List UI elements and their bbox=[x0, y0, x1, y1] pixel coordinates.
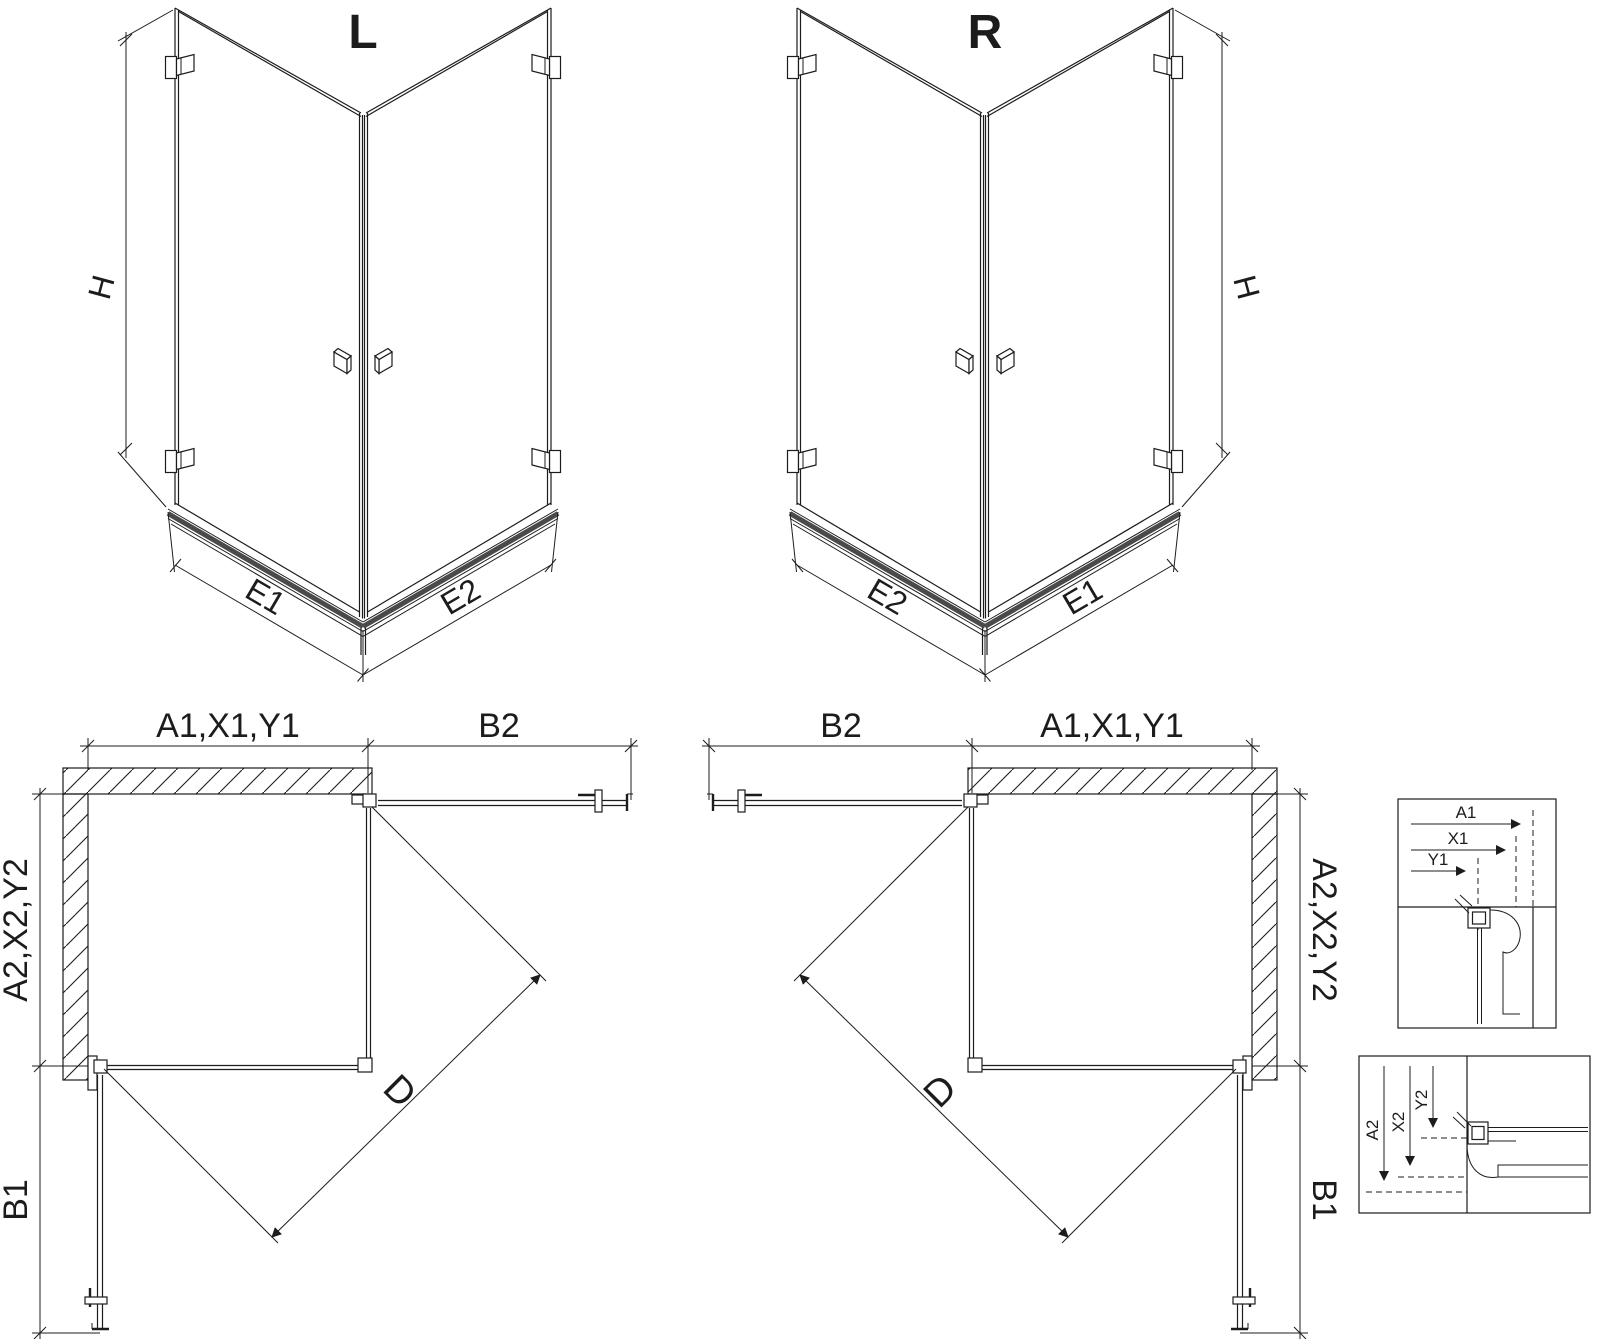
plan-right-top-wall bbox=[968, 768, 1277, 794]
drawing-canvas: L H E1 E2 R H E2 E1 A1,X1,Y1 B2 A2,X2,Y2… bbox=[0, 0, 1600, 1339]
plan-left-side-wall bbox=[63, 794, 88, 1080]
detail-upper-label-a1: A1 bbox=[1456, 803, 1477, 822]
iso-left-title: L bbox=[348, 6, 377, 59]
detail-section-lower: A2 X2 Y2 bbox=[1359, 1056, 1590, 1213]
detail-lower-label-a2: A2 bbox=[1363, 1120, 1382, 1141]
detail-section-upper: A1 X1 Y1 bbox=[1398, 799, 1556, 1028]
plan-left-dim-d: D bbox=[375, 1067, 424, 1116]
plan-left-dim-a2: A2,X2,Y2 bbox=[0, 858, 35, 1002]
plan-right-dim-a1: A1,X1,Y1 bbox=[1040, 707, 1184, 745]
iso-view-right: R H E2 E1 bbox=[788, 6, 1268, 682]
technical-drawing-sheet: L H E1 E2 R H E2 E1 A1,X1,Y1 B2 A2,X2,Y2… bbox=[0, 0, 1600, 1339]
plan-view-right: B2 A1,X1,Y1 A2,X2,Y2 B1 D bbox=[702, 707, 1343, 1339]
plan-left-dim-a1: A1,X1,Y1 bbox=[156, 707, 300, 745]
iso-left-dim-height: H bbox=[81, 271, 122, 303]
plan-view-left: A1,X1,Y1 B2 A2,X2,Y2 B1 D bbox=[0, 707, 638, 1339]
iso-right-dim-height: H bbox=[1226, 271, 1267, 303]
detail-lower-label-y2: Y2 bbox=[1412, 1090, 1431, 1111]
plan-right-dim-b1: B1 bbox=[1305, 1179, 1343, 1221]
plan-right-side-wall bbox=[1252, 794, 1277, 1080]
iso-right-title: R bbox=[968, 6, 1003, 59]
plan-right-dim-d: D bbox=[916, 1067, 965, 1116]
detail-upper-label-y1: Y1 bbox=[1428, 850, 1449, 869]
plan-left-dim-b2: B2 bbox=[478, 707, 520, 745]
detail-upper-label-x1: X1 bbox=[1448, 829, 1469, 848]
plan-left-top-wall bbox=[63, 768, 372, 794]
plan-right-dim-b2: B2 bbox=[820, 707, 862, 745]
iso-view-left: L H E1 E2 bbox=[81, 6, 561, 682]
plan-right-dim-a2: A2,X2,Y2 bbox=[1305, 858, 1343, 1002]
plan-left-dim-b1: B1 bbox=[0, 1179, 35, 1221]
detail-lower-label-x2: X2 bbox=[1389, 1112, 1408, 1133]
